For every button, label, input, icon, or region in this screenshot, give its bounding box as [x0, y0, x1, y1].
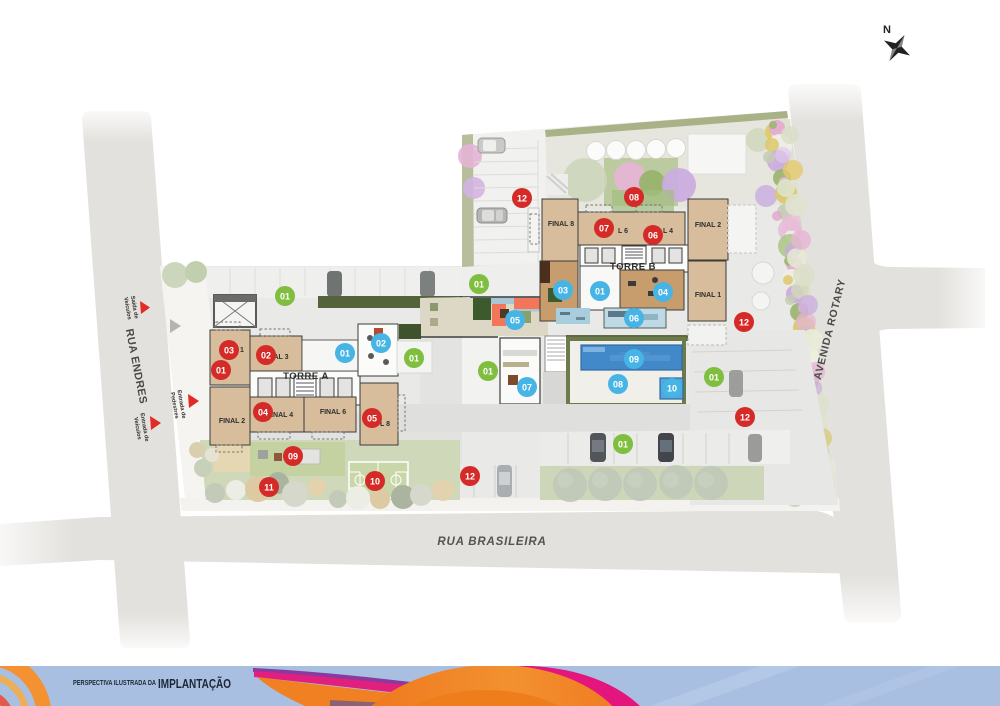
svg-text:09: 09	[629, 355, 639, 365]
svg-text:10: 10	[667, 384, 677, 394]
svg-text:05: 05	[510, 316, 520, 326]
svg-text:FINAL 2: FINAL 2	[219, 418, 245, 425]
svg-text:FINAL 1: FINAL 1	[695, 292, 721, 299]
svg-text:1: 1	[240, 347, 244, 354]
svg-text:07: 07	[599, 224, 609, 234]
svg-text:06: 06	[629, 314, 639, 324]
svg-text:01: 01	[474, 280, 484, 290]
svg-text:12: 12	[739, 318, 749, 328]
svg-text:TORRE A: TORRE A	[283, 371, 329, 382]
svg-text:06: 06	[648, 231, 658, 241]
svg-text:FINAL 6: FINAL 6	[320, 409, 346, 416]
svg-text:01: 01	[216, 366, 226, 376]
svg-text:03: 03	[558, 286, 568, 296]
svg-text:L 6: L 6	[618, 228, 628, 235]
svg-text:01: 01	[618, 440, 628, 450]
svg-text:01: 01	[409, 354, 419, 364]
svg-text:12: 12	[740, 413, 750, 423]
svg-text:01: 01	[595, 287, 605, 297]
svg-text:08: 08	[629, 193, 639, 203]
svg-text:03: 03	[224, 346, 234, 356]
svg-text:12: 12	[465, 472, 475, 482]
svg-text:FINAL 8: FINAL 8	[548, 221, 574, 228]
svg-text:09: 09	[288, 452, 298, 462]
svg-text:TORRE B: TORRE B	[610, 262, 656, 273]
svg-text:PERSPECTIVA ILUSTRADA DA: PERSPECTIVA ILUSTRADA DA	[73, 680, 156, 687]
svg-text:02: 02	[261, 351, 271, 361]
svg-text:01: 01	[340, 349, 350, 359]
svg-text:01: 01	[483, 367, 493, 377]
svg-text:01: 01	[280, 292, 290, 302]
svg-text:01: 01	[709, 373, 719, 383]
svg-text:IMPLANTAÇÃO: IMPLANTAÇÃO	[158, 676, 231, 691]
svg-text:12: 12	[517, 194, 527, 204]
svg-text:08: 08	[613, 380, 623, 390]
svg-text:L 8: L 8	[380, 421, 390, 428]
svg-text:04: 04	[258, 408, 268, 418]
svg-text:FINAL 2: FINAL 2	[695, 222, 721, 229]
svg-text:04: 04	[658, 288, 668, 298]
svg-text:05: 05	[367, 414, 377, 424]
svg-text:11: 11	[264, 483, 274, 493]
svg-text:L 4: L 4	[663, 228, 673, 235]
svg-text:RUA BRASILEIRA: RUA BRASILEIRA	[437, 536, 546, 548]
svg-text:N: N	[883, 24, 891, 36]
svg-text:02: 02	[376, 339, 386, 349]
svg-text:07: 07	[522, 383, 532, 393]
svg-text:10: 10	[370, 477, 380, 487]
